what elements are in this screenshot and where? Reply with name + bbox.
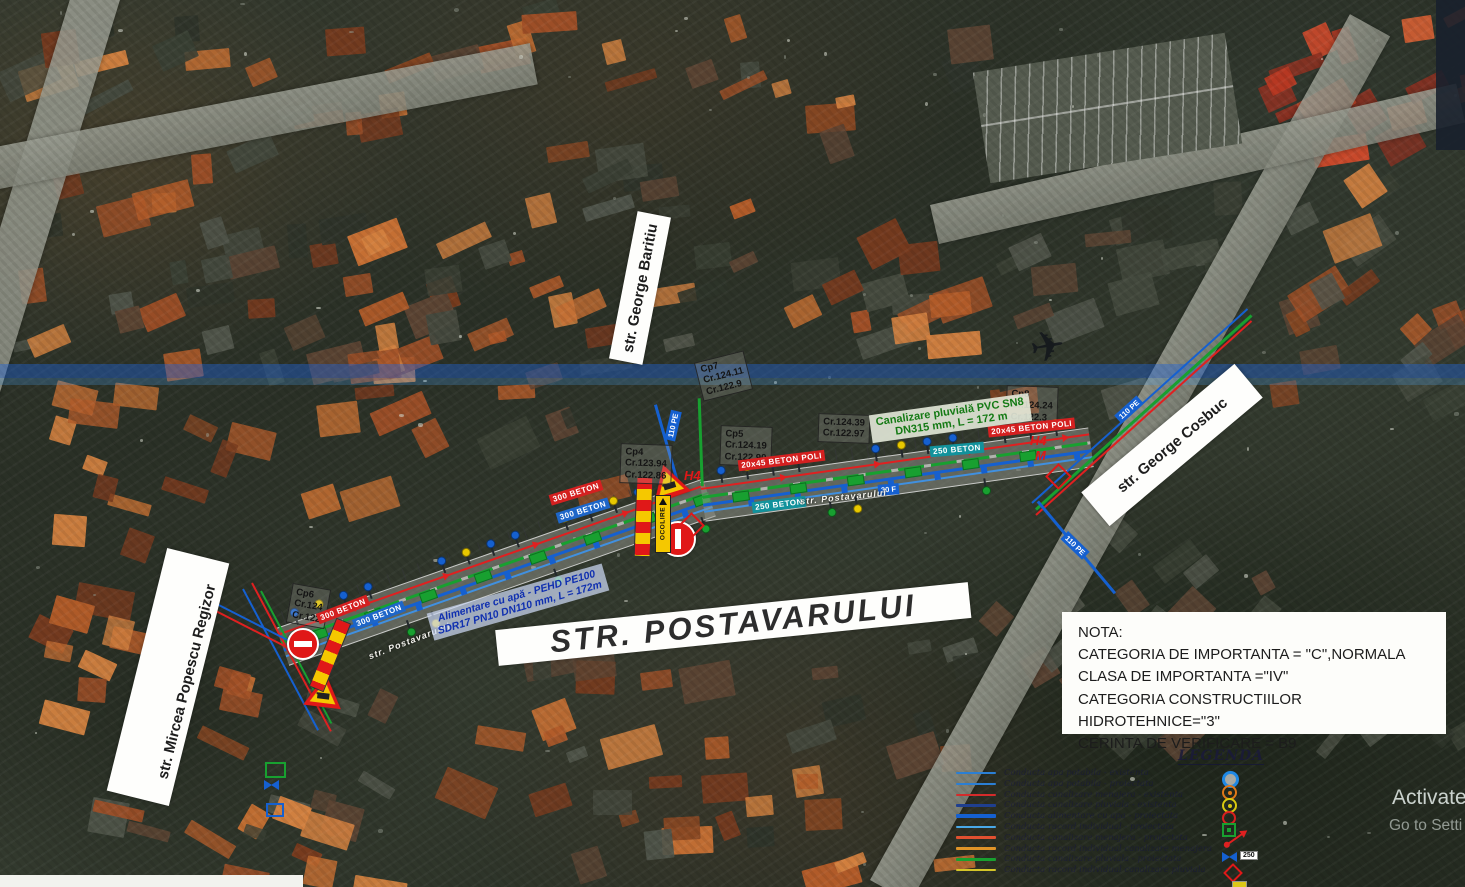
roof bbox=[403, 291, 459, 340]
speck bbox=[863, 293, 866, 296]
roof bbox=[152, 31, 199, 73]
speck bbox=[924, 532, 926, 534]
roof bbox=[1278, 292, 1320, 335]
speck bbox=[118, 29, 123, 32]
roof bbox=[1375, 172, 1401, 197]
photo-dark-corner bbox=[1436, 0, 1465, 150]
speck bbox=[35, 732, 37, 734]
speck bbox=[784, 55, 786, 58]
legend-row: Conducta apa potabila - existenta bbox=[956, 768, 1149, 778]
speck bbox=[316, 307, 321, 310]
speck bbox=[1247, 447, 1249, 450]
roof bbox=[571, 846, 608, 885]
roof bbox=[436, 222, 492, 260]
roof bbox=[77, 677, 106, 703]
roof bbox=[498, 384, 536, 400]
valve-bowtie-icon bbox=[1222, 852, 1237, 862]
roof bbox=[152, 192, 177, 213]
roof bbox=[92, 474, 119, 503]
legend-row: Conducta canalizare menajera - proiectat… bbox=[956, 833, 1188, 843]
speck bbox=[624, 600, 627, 602]
roof bbox=[891, 312, 930, 344]
speck bbox=[965, 653, 968, 655]
roof bbox=[79, 79, 134, 115]
dot bbox=[1228, 791, 1232, 795]
roof bbox=[792, 765, 824, 798]
speck bbox=[983, 113, 987, 116]
roof bbox=[343, 273, 373, 297]
roof bbox=[87, 797, 130, 839]
roof bbox=[582, 194, 635, 221]
roof bbox=[243, 823, 268, 840]
roof bbox=[358, 291, 410, 326]
roof bbox=[719, 70, 768, 101]
speck bbox=[1097, 53, 1100, 56]
roof bbox=[287, 223, 308, 258]
legend-swatch bbox=[956, 814, 996, 818]
roof bbox=[822, 270, 864, 306]
roof bbox=[715, 811, 741, 841]
roof bbox=[1287, 265, 1352, 323]
roof bbox=[1281, 202, 1319, 236]
activate-watermark-line1: Activate bbox=[1392, 786, 1465, 810]
speck bbox=[1072, 105, 1075, 108]
roof bbox=[291, 102, 343, 130]
roof bbox=[1339, 214, 1396, 267]
roof bbox=[1234, 216, 1270, 249]
roof bbox=[199, 217, 229, 251]
roof bbox=[528, 783, 572, 818]
roof bbox=[1311, 133, 1369, 168]
roof bbox=[53, 171, 85, 200]
roof bbox=[27, 324, 71, 358]
roof bbox=[92, 799, 144, 822]
roof bbox=[947, 25, 993, 64]
roof bbox=[834, 852, 867, 873]
roof bbox=[1275, 104, 1302, 124]
roof bbox=[1008, 232, 1052, 271]
roof bbox=[51, 380, 98, 416]
speck bbox=[41, 177, 45, 180]
camin-green-square-icon bbox=[1222, 823, 1236, 837]
roof bbox=[1251, 570, 1275, 595]
legend-row: Conducta racord individual - proiectata bbox=[956, 822, 1174, 832]
roof bbox=[729, 198, 755, 219]
roof bbox=[283, 314, 325, 351]
road-top-right bbox=[930, 84, 1465, 244]
roof bbox=[783, 294, 821, 328]
roof bbox=[210, 439, 238, 477]
roof bbox=[1331, 26, 1359, 65]
roof bbox=[1302, 22, 1338, 60]
legend-entry-label: Conducta racord individual canalizare pl… bbox=[1004, 865, 1206, 875]
roof bbox=[640, 669, 673, 691]
roof bbox=[1341, 88, 1387, 135]
speck bbox=[545, 750, 550, 753]
roof bbox=[37, 213, 63, 239]
speck bbox=[709, 109, 712, 112]
roof bbox=[1296, 78, 1356, 129]
yellow-box-icon bbox=[1232, 881, 1247, 887]
roof bbox=[475, 725, 526, 752]
roof bbox=[183, 820, 236, 860]
roof bbox=[507, 19, 536, 56]
roof bbox=[362, 228, 391, 255]
roof bbox=[976, 678, 1008, 704]
roof bbox=[1264, 66, 1297, 96]
speck bbox=[418, 423, 422, 426]
roof bbox=[1019, 646, 1060, 688]
roof bbox=[351, 875, 408, 887]
roof bbox=[219, 686, 263, 717]
roof bbox=[0, 50, 62, 103]
roof bbox=[247, 298, 275, 319]
speck bbox=[206, 433, 209, 437]
legend-title: LEGENDA bbox=[1178, 748, 1264, 765]
roof bbox=[310, 789, 337, 813]
roof bbox=[345, 112, 363, 136]
roof bbox=[1323, 213, 1383, 264]
roof bbox=[644, 828, 675, 860]
legend: LEGENDA Conducta apa potabila - existent… bbox=[940, 744, 1270, 887]
roof bbox=[546, 140, 590, 163]
roof bbox=[560, 406, 582, 429]
roof bbox=[1031, 263, 1078, 296]
roof bbox=[300, 810, 355, 850]
legend-entry-label: Conducta racord individual canalizare me… bbox=[1004, 844, 1212, 854]
legend-swatch bbox=[956, 836, 996, 839]
roof bbox=[678, 660, 736, 705]
roof bbox=[355, 107, 402, 143]
roof bbox=[302, 855, 337, 887]
roof bbox=[821, 694, 865, 728]
legend-entry-label: Conducta canalizare menajera - proiectat… bbox=[1004, 833, 1188, 843]
roof bbox=[1109, 211, 1148, 246]
nota-box: NOTA: CATEGORIA DE IMPORTANTA = "C",NORM… bbox=[1062, 612, 1446, 734]
roof bbox=[814, 339, 838, 365]
roof bbox=[1203, 246, 1231, 275]
roof bbox=[347, 217, 408, 266]
roof bbox=[476, 37, 531, 74]
legend-entry-label: Conducta canalizare menajera - existenta bbox=[1004, 790, 1183, 800]
roof bbox=[318, 212, 369, 245]
speck bbox=[1390, 428, 1394, 431]
roof bbox=[89, 14, 115, 40]
speck bbox=[513, 232, 516, 235]
roof bbox=[102, 615, 135, 651]
roof bbox=[677, 278, 729, 306]
roof bbox=[74, 582, 135, 622]
roof bbox=[435, 767, 498, 819]
nota-title: NOTA: bbox=[1078, 622, 1446, 644]
roof bbox=[74, 50, 129, 77]
roof bbox=[929, 290, 972, 317]
roof bbox=[1311, 106, 1341, 127]
roof bbox=[860, 273, 910, 313]
water-node bbox=[981, 467, 988, 474]
speck bbox=[309, 526, 313, 528]
roof bbox=[1153, 539, 1203, 584]
roof bbox=[912, 709, 938, 745]
roof bbox=[622, 163, 664, 192]
roof bbox=[126, 821, 170, 843]
roof bbox=[507, 249, 526, 265]
road-top-left bbox=[0, 43, 538, 191]
legend-swatch bbox=[956, 794, 996, 796]
legend-row: Conducta canalizare pluviala - existenta bbox=[956, 800, 1177, 810]
legend-row: Conducta racord individual canalizare pl… bbox=[956, 865, 1206, 875]
roof bbox=[886, 731, 944, 779]
roof bbox=[28, 614, 73, 654]
legend-entry-label: Conducta canalizare pluviala - proiectat… bbox=[1004, 854, 1182, 864]
speck bbox=[519, 55, 523, 59]
speck bbox=[1101, 257, 1103, 260]
speck bbox=[863, 863, 866, 867]
roof bbox=[529, 275, 564, 298]
roof bbox=[38, 699, 90, 735]
roof bbox=[1108, 272, 1160, 316]
speck bbox=[399, 414, 404, 416]
roof bbox=[1084, 229, 1131, 246]
roof bbox=[525, 192, 557, 228]
roof bbox=[745, 795, 774, 818]
chamber-rect-blue bbox=[266, 803, 284, 817]
speck bbox=[244, 52, 247, 56]
dot bbox=[1228, 804, 1232, 808]
nota-line: CATEGORIA DE IMPORTANTA = "C",NORMALA bbox=[1078, 644, 1446, 666]
roof bbox=[801, 856, 862, 887]
speck bbox=[1327, 836, 1330, 839]
roof bbox=[225, 245, 280, 279]
roof bbox=[305, 90, 361, 116]
roof bbox=[17, 56, 78, 102]
roof bbox=[811, 666, 838, 680]
legend-row: Conducta racord individual canalizare me… bbox=[956, 844, 1212, 854]
roof bbox=[357, 770, 395, 800]
valve-size-box: 250 bbox=[1240, 851, 1258, 860]
roof bbox=[1413, 314, 1465, 368]
speck bbox=[1049, 299, 1052, 301]
roof bbox=[320, 800, 365, 842]
roof bbox=[49, 595, 95, 634]
speck bbox=[454, 8, 459, 12]
speck bbox=[36, 566, 40, 569]
speck bbox=[1016, 342, 1018, 345]
speck bbox=[349, 31, 354, 34]
legend-swatch bbox=[956, 847, 996, 850]
roof bbox=[932, 276, 993, 323]
roof bbox=[226, 671, 255, 699]
legend-entry-label: Conducta canalizare pluviala - existenta bbox=[1004, 800, 1177, 810]
speck bbox=[90, 210, 93, 212]
roof bbox=[897, 290, 957, 334]
speck bbox=[1367, 832, 1371, 835]
roof bbox=[78, 649, 118, 681]
speck bbox=[240, 3, 245, 5]
speck bbox=[747, 76, 750, 79]
roof bbox=[18, 268, 47, 304]
legend-row: Conducta canalizare pluviala - proiectat… bbox=[956, 854, 1182, 864]
roof bbox=[595, 143, 649, 184]
roof bbox=[52, 514, 87, 547]
roof bbox=[819, 124, 855, 165]
roof bbox=[1431, 300, 1463, 330]
roof bbox=[226, 132, 278, 173]
roof bbox=[220, 227, 266, 267]
speck bbox=[933, 73, 936, 77]
roof bbox=[531, 698, 577, 742]
roof bbox=[1402, 15, 1435, 43]
roof bbox=[805, 102, 856, 134]
roof bbox=[12, 337, 39, 352]
speck bbox=[824, 52, 827, 56]
legend-swatch bbox=[956, 869, 996, 872]
roof bbox=[191, 153, 213, 184]
speck bbox=[1375, 39, 1378, 41]
roof bbox=[545, 406, 579, 441]
roof bbox=[115, 305, 145, 333]
speck bbox=[684, 17, 688, 20]
roof bbox=[740, 61, 761, 89]
water-node bbox=[1027, 460, 1034, 467]
speck bbox=[140, 439, 143, 442]
roof bbox=[370, 391, 432, 437]
red-diamond-icon bbox=[1223, 863, 1243, 883]
roof bbox=[996, 241, 1050, 276]
roof bbox=[747, 827, 775, 848]
flow-arrow bbox=[874, 460, 882, 469]
roof bbox=[566, 746, 588, 763]
roof bbox=[856, 322, 913, 360]
speck bbox=[568, 76, 572, 78]
roof bbox=[521, 11, 577, 34]
roof bbox=[1399, 313, 1432, 346]
legend-entry-label: Conducta apa potabila - proiectata bbox=[1004, 779, 1154, 789]
roof bbox=[202, 325, 235, 355]
speck bbox=[72, 233, 75, 236]
roof bbox=[662, 826, 715, 855]
roof bbox=[856, 218, 911, 270]
pipe-size-label: M bbox=[1035, 448, 1046, 463]
roof bbox=[301, 484, 342, 520]
speck bbox=[910, 294, 914, 297]
roof bbox=[120, 527, 155, 563]
roof bbox=[663, 333, 695, 352]
roof bbox=[185, 48, 231, 71]
roof bbox=[548, 292, 578, 329]
roof bbox=[1116, 240, 1170, 284]
roof bbox=[701, 772, 749, 803]
parking-lot bbox=[973, 33, 1242, 184]
legend-swatch bbox=[956, 772, 996, 774]
chamber-label: Cp4Cr.123.94Cr.122.86 bbox=[619, 443, 672, 485]
roof bbox=[476, 416, 540, 470]
speck bbox=[918, 347, 921, 351]
roof bbox=[1441, 307, 1465, 349]
water-node bbox=[934, 473, 941, 480]
legend-row: Conducta alimentare cu apa - proiectata bbox=[956, 811, 1178, 821]
speck bbox=[1321, 58, 1324, 60]
speck bbox=[787, 39, 790, 42]
legend-swatch bbox=[956, 804, 996, 807]
roof bbox=[1120, 204, 1172, 242]
roof bbox=[1343, 163, 1388, 208]
roof bbox=[107, 493, 152, 516]
roof bbox=[771, 79, 792, 98]
roof bbox=[907, 639, 931, 655]
speck bbox=[378, 829, 382, 833]
speck bbox=[459, 335, 463, 338]
ocolire-label: OCOLIRE bbox=[660, 498, 667, 550]
roof bbox=[183, 414, 219, 443]
legend-entry-label: Conducta racord individual - proiectata bbox=[1004, 822, 1174, 832]
valve-bowtie-icon bbox=[264, 780, 279, 790]
roof bbox=[355, 384, 395, 400]
speck bbox=[1283, 821, 1287, 825]
roof bbox=[108, 291, 134, 315]
roof bbox=[161, 476, 210, 504]
roof bbox=[1309, 272, 1345, 310]
roof bbox=[138, 292, 187, 332]
roof bbox=[604, 68, 657, 92]
speck bbox=[946, 729, 950, 732]
legend-entry-label: Conducta alimentare cu apa - proiectata bbox=[1004, 811, 1178, 821]
roof bbox=[68, 398, 121, 429]
roof bbox=[112, 383, 158, 411]
roof bbox=[316, 400, 360, 437]
roof bbox=[593, 789, 632, 815]
no-entry-sign bbox=[287, 628, 319, 660]
roof bbox=[214, 666, 251, 695]
activate-watermark-line2: Go to Setti bbox=[1389, 817, 1462, 835]
roof bbox=[340, 476, 401, 523]
roof bbox=[1182, 554, 1219, 589]
pipe-size-label: H4 bbox=[1030, 433, 1047, 448]
roof bbox=[978, 601, 1014, 637]
roof bbox=[309, 241, 339, 268]
roof bbox=[729, 251, 758, 273]
roof bbox=[82, 455, 108, 477]
roof bbox=[1447, 707, 1465, 751]
roof bbox=[664, 816, 701, 841]
roof bbox=[131, 180, 194, 222]
roof bbox=[49, 416, 77, 446]
speck bbox=[617, 553, 621, 556]
roof bbox=[555, 288, 607, 326]
roof bbox=[291, 842, 323, 866]
speck bbox=[1395, 231, 1399, 235]
roof bbox=[488, 330, 507, 345]
speck bbox=[1059, 28, 1063, 30]
nota-line: CLASA DE IMPORTANTA ="IV" bbox=[1078, 666, 1446, 688]
chamber-rect-green bbox=[265, 762, 286, 778]
legend-row: Conducta apa potabila - proiectata bbox=[956, 779, 1154, 789]
roof bbox=[1338, 269, 1381, 306]
speck bbox=[320, 757, 322, 759]
speck bbox=[1138, 553, 1142, 557]
roof bbox=[44, 640, 74, 662]
speck bbox=[93, 594, 96, 596]
roof bbox=[639, 176, 679, 202]
legend-swatch bbox=[956, 783, 996, 785]
nota-line: CATEGORIA CONSTRUCTIILOR HIDROTEHNICE="3… bbox=[1078, 689, 1446, 733]
legend-swatch bbox=[956, 858, 996, 861]
roof bbox=[1374, 117, 1426, 167]
roof bbox=[619, 809, 640, 827]
roof bbox=[943, 637, 980, 663]
roof bbox=[411, 418, 449, 459]
roof bbox=[375, 323, 399, 351]
